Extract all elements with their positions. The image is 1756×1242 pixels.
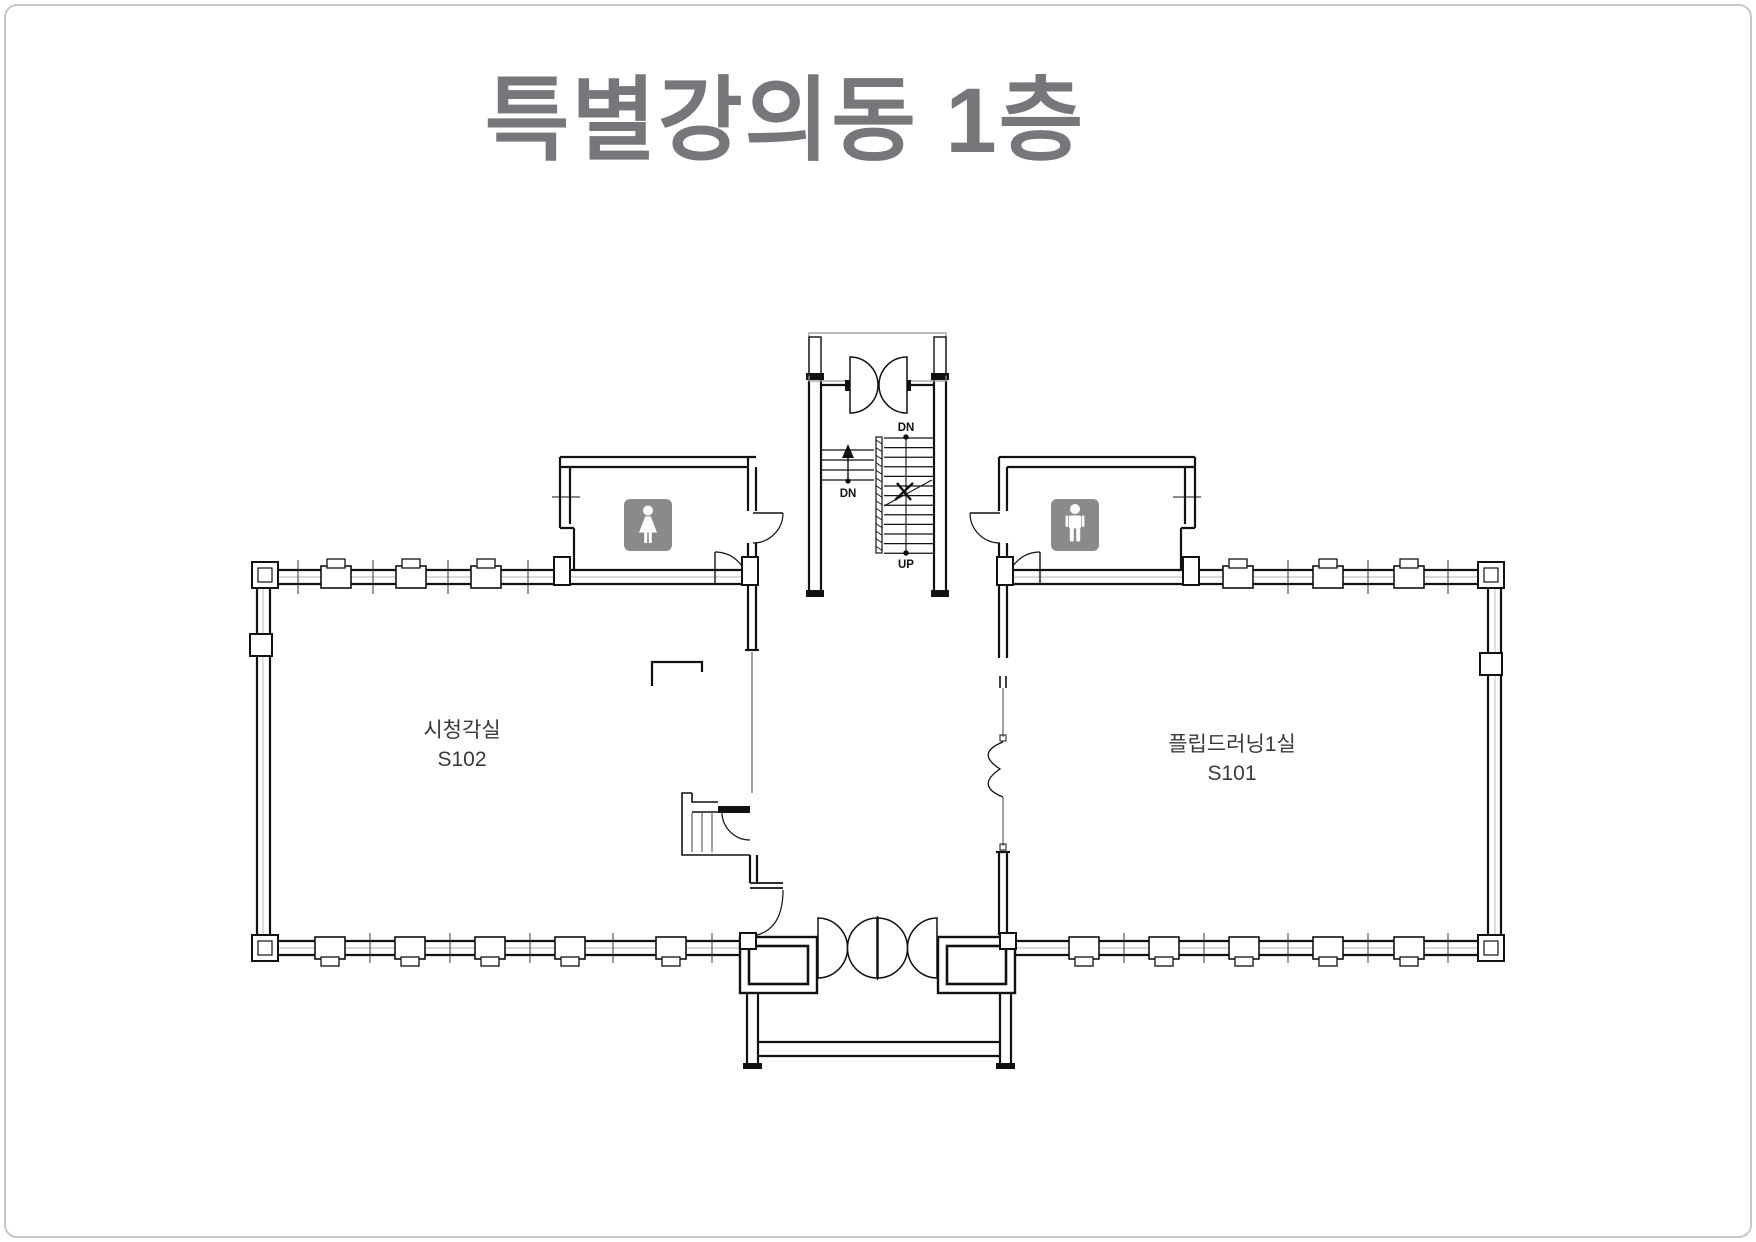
men-restroom-icon [1051, 499, 1099, 551]
window-symbol-notch [662, 957, 680, 966]
window-symbol [555, 937, 585, 959]
window-symbol [321, 566, 351, 588]
window-symbol-notch [401, 957, 419, 966]
window-symbol-notch [1075, 957, 1093, 966]
room-s102-code: S102 [437, 748, 486, 771]
wall-junction-column [997, 557, 1013, 585]
window-symbol-notch [1319, 957, 1337, 966]
window-symbol-notch [477, 559, 495, 568]
window-symbol [1069, 937, 1099, 959]
room-s101-code: S101 [1207, 762, 1256, 785]
window-symbol-notch [1400, 559, 1418, 568]
wall-junction-column [554, 557, 570, 585]
porch-rail-cap [996, 1063, 1015, 1069]
window-symbol-notch [561, 957, 579, 966]
wall-junction-column [1183, 557, 1199, 585]
wall-column [250, 634, 272, 656]
page-title: 특별강의동 1층 [485, 70, 1086, 172]
room-s102-name: 시청각실 [423, 719, 500, 742]
floor-plan-svg: 특별강의동 1층 [0, 0, 1756, 1242]
wall-cap [806, 590, 824, 597]
window-symbol [1394, 566, 1424, 588]
stair-up-label: UP [898, 559, 914, 571]
window-symbol [1313, 566, 1343, 588]
corner-column [252, 935, 278, 961]
side-stair-arrow-dot [845, 478, 850, 483]
window-symbol-notch [402, 559, 420, 568]
wall-column [1480, 653, 1502, 675]
wall-cap [931, 590, 949, 597]
floor-plan-page: 특별강의동 1층 [0, 0, 1756, 1242]
window-symbol [396, 566, 426, 588]
window-symbol-notch [1400, 957, 1418, 966]
window-symbol [475, 937, 505, 959]
women-restroom-icon [624, 499, 672, 551]
window-symbol [656, 937, 686, 959]
corner-column [1478, 935, 1504, 961]
pier-column [1000, 933, 1016, 949]
window-symbol [1313, 937, 1343, 959]
window-symbol-notch [321, 957, 339, 966]
porch-rail-cap [743, 1063, 762, 1069]
window-symbol-notch [1319, 559, 1337, 568]
stair-hall-left-wall [809, 378, 821, 594]
corner-column [252, 562, 278, 588]
window-symbol-notch [1155, 957, 1173, 966]
room-s101-name: 플립드러닝1실 [1168, 733, 1296, 756]
corner-column [1478, 562, 1504, 588]
side-stair-dn-label: DN [840, 488, 857, 500]
stair-hall-right-wall [934, 378, 946, 594]
window-symbol-notch [327, 559, 345, 568]
window-symbol [1394, 937, 1424, 959]
window-symbol [1223, 566, 1253, 588]
window-symbol [395, 937, 425, 959]
window-symbol-notch [1229, 559, 1247, 568]
stair-centerline-dot [903, 434, 908, 439]
window-symbol-notch [481, 957, 499, 966]
pier-column [740, 933, 756, 949]
window-symbol [315, 937, 345, 959]
wall-junction-column [742, 557, 758, 585]
stair-dn-label: DN [898, 422, 915, 434]
window-symbol [471, 566, 501, 588]
window-symbol-notch [1235, 957, 1253, 966]
window-symbol [1149, 937, 1179, 959]
window-symbol [1229, 937, 1259, 959]
interior-door-lintel [718, 806, 750, 813]
